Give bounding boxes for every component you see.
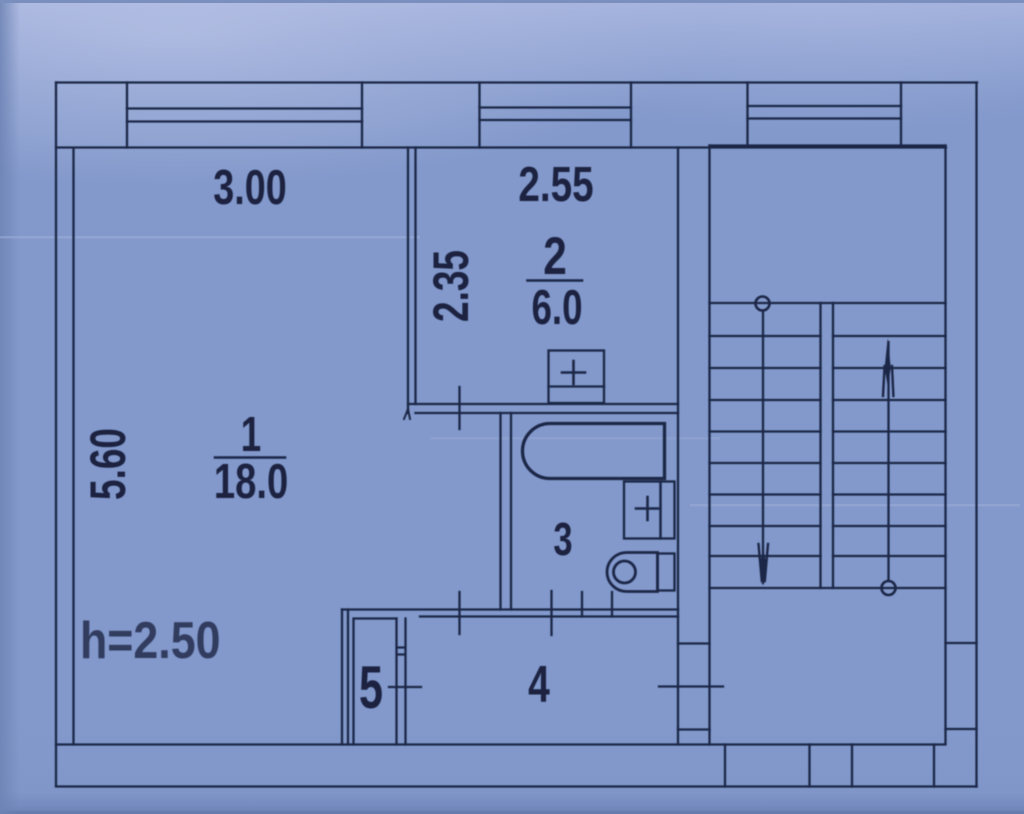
svg-text:6.0: 6.0 — [531, 281, 582, 335]
svg-text:18.0: 18.0 — [214, 455, 288, 510]
svg-text:3.00: 3.00 — [213, 160, 286, 215]
svg-text:2: 2 — [543, 228, 567, 287]
svg-text:2.35: 2.35 — [424, 250, 480, 322]
svg-text:2.55: 2.55 — [518, 158, 593, 212]
svg-text:3: 3 — [553, 513, 572, 565]
svg-text:5.60: 5.60 — [81, 428, 137, 500]
svg-text:5: 5 — [359, 655, 383, 722]
svg-text:h=2.50: h=2.50 — [80, 612, 220, 670]
svg-text:4: 4 — [528, 654, 550, 713]
